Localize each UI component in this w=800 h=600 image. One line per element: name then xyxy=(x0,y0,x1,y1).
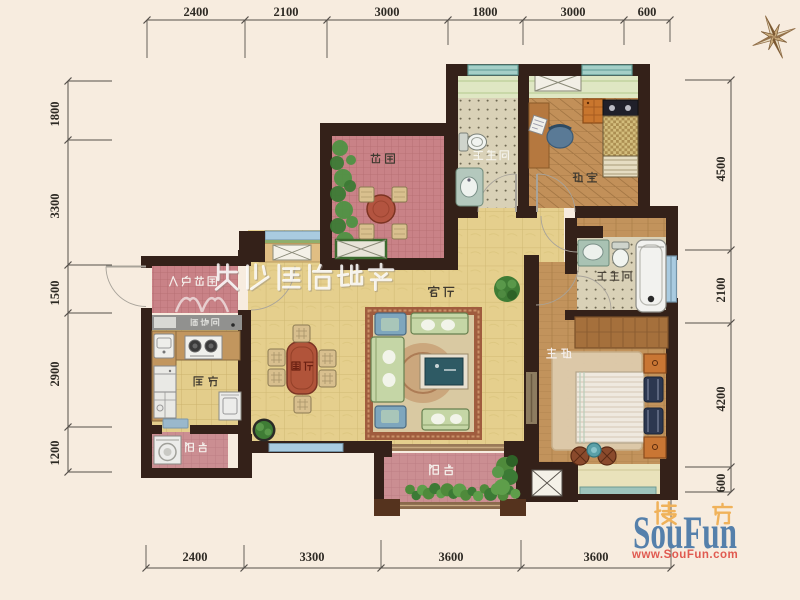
svg-text:www.SouFun.com: www.SouFun.com xyxy=(631,549,738,561)
svg-text:3600: 3600 xyxy=(439,550,464,564)
svg-text:2100: 2100 xyxy=(274,5,299,19)
svg-text:3000: 3000 xyxy=(561,5,586,19)
svg-text:2400: 2400 xyxy=(183,550,208,564)
svg-text:600: 600 xyxy=(714,474,728,493)
svg-text:2100: 2100 xyxy=(714,278,728,303)
svg-text:1500: 1500 xyxy=(48,281,62,306)
svg-text:3000: 3000 xyxy=(375,5,400,19)
svg-text:1800: 1800 xyxy=(48,102,62,127)
svg-text:4200: 4200 xyxy=(714,387,728,412)
svg-text:600: 600 xyxy=(638,5,657,19)
svg-text:3600: 3600 xyxy=(584,550,609,564)
svg-text:1200: 1200 xyxy=(48,441,62,466)
svg-text:3300: 3300 xyxy=(48,194,62,219)
svg-text:2900: 2900 xyxy=(48,362,62,387)
svg-text:1800: 1800 xyxy=(473,5,498,19)
svg-text:3300: 3300 xyxy=(300,550,325,564)
svg-text:2400: 2400 xyxy=(184,5,209,19)
svg-text:4500: 4500 xyxy=(714,157,728,182)
